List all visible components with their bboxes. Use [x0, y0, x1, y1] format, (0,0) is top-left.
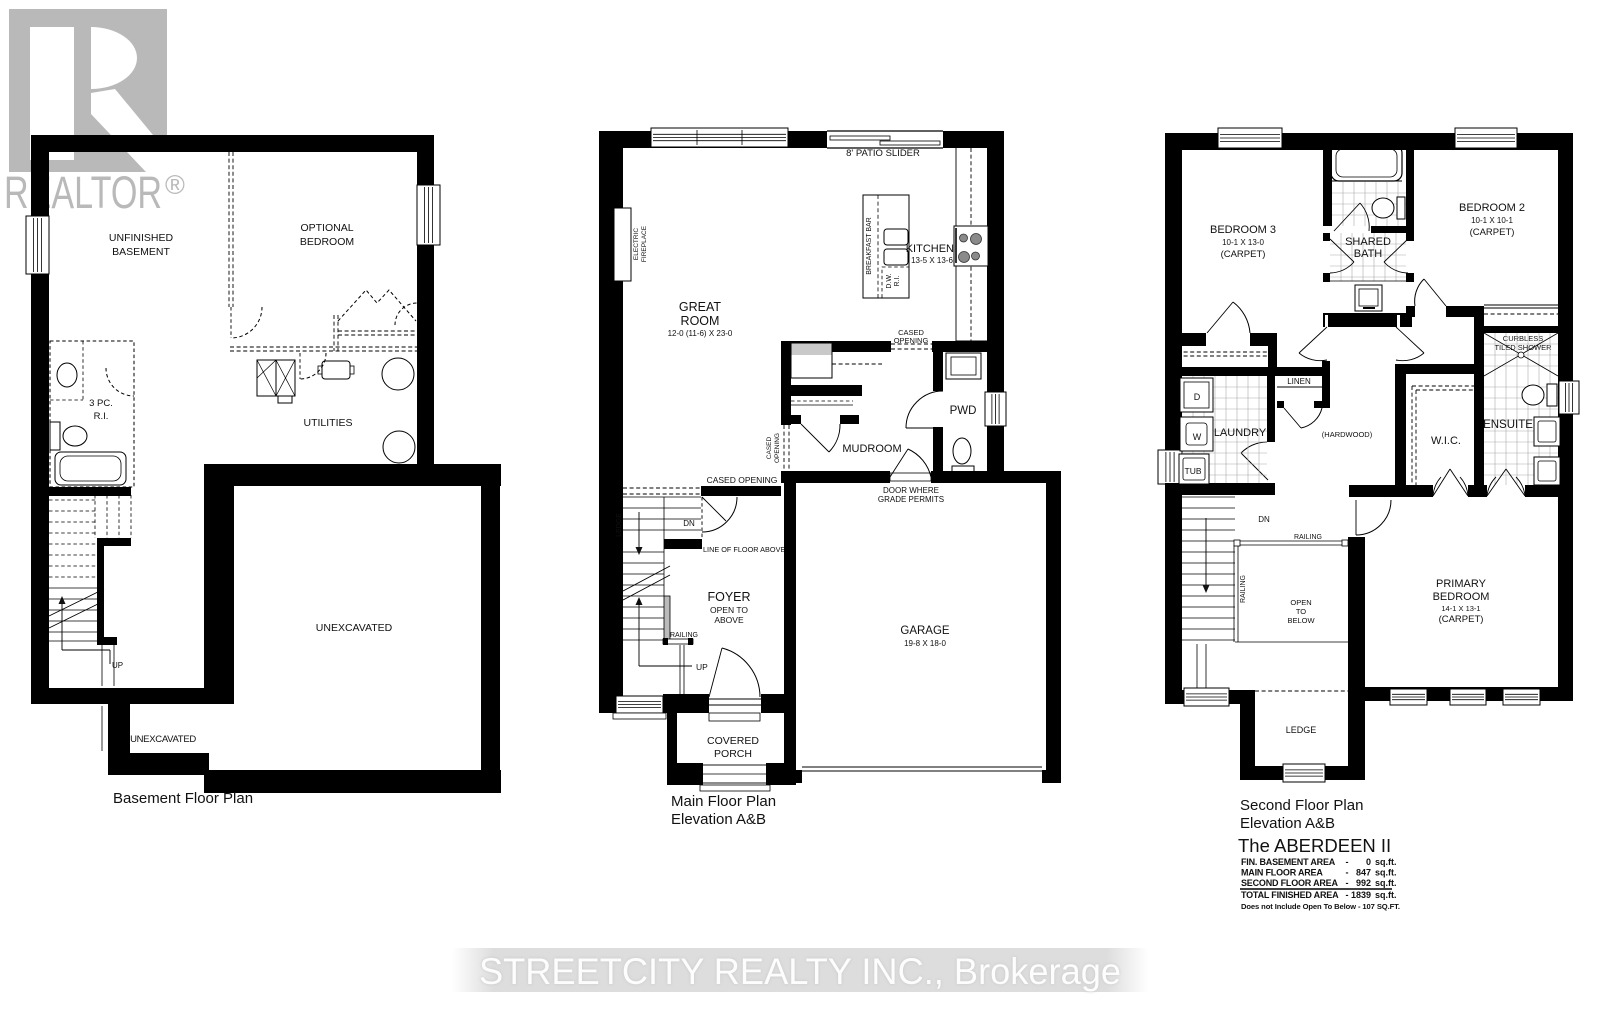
svg-text:R.I.: R.I.	[94, 411, 109, 422]
svg-text:CURBLESS: CURBLESS	[1503, 334, 1543, 343]
svg-text:FIN. BASEMENT AREA: FIN. BASEMENT AREA	[1241, 857, 1336, 867]
svg-text:19-8 X 18-0: 19-8 X 18-0	[904, 639, 946, 648]
svg-text:GRADE PERMITS: GRADE PERMITS	[878, 495, 944, 504]
svg-text:GARAGE: GARAGE	[900, 625, 950, 637]
svg-text:GREAT: GREAT	[679, 300, 721, 314]
svg-text:992: 992	[1356, 878, 1371, 888]
svg-text:TO: TO	[1296, 607, 1306, 616]
svg-text:OPENING: OPENING	[774, 433, 781, 463]
svg-text:UNFINISHED: UNFINISHED	[109, 232, 174, 244]
svg-text:®: ®	[165, 170, 185, 200]
svg-text:sq.ft.: sq.ft.	[1375, 878, 1397, 888]
svg-text:sq.ft.: sq.ft.	[1375, 890, 1397, 900]
svg-text:ELECTRIC: ELECTRIC	[633, 228, 640, 260]
svg-text:BATH: BATH	[1354, 248, 1383, 260]
svg-text:BEDROOM 3: BEDROOM 3	[1210, 224, 1276, 236]
svg-text:STREETCITY REALTY INC., Broker: STREETCITY REALTY INC., Brokerage	[479, 951, 1121, 992]
svg-text:RAILING: RAILING	[1294, 534, 1322, 541]
svg-text:BREAKFAST BAR: BREAKFAST BAR	[866, 217, 873, 274]
svg-text:-: -	[1346, 890, 1349, 900]
svg-text:LEDGE: LEDGE	[616, 513, 623, 537]
svg-text:TUB: TUB	[1185, 466, 1202, 476]
svg-text:UP: UP	[696, 662, 708, 672]
svg-text:-: -	[1346, 868, 1349, 878]
svg-text:LEDGE: LEDGE	[1286, 725, 1317, 735]
svg-text:LINEN: LINEN	[1287, 377, 1311, 386]
svg-text:MUDROOM: MUDROOM	[842, 443, 901, 455]
svg-text:0: 0	[1366, 857, 1371, 867]
svg-text:ABOVE: ABOVE	[714, 615, 744, 625]
svg-text:sq.ft.: sq.ft.	[1375, 868, 1397, 878]
svg-text:Elevation A&B: Elevation A&B	[1240, 815, 1335, 832]
svg-text:1839: 1839	[1351, 890, 1371, 900]
svg-text:DN: DN	[1258, 515, 1270, 524]
svg-text:R.I.: R.I.	[894, 276, 901, 287]
svg-text:Second Floor Plan: Second Floor Plan	[1240, 797, 1363, 814]
svg-text:10-1 X 10-1: 10-1 X 10-1	[1471, 216, 1513, 225]
svg-text:RAILING: RAILING	[670, 632, 698, 639]
svg-text:Does not Include Open To Below: Does not Include Open To Below - 107 SQ.…	[1241, 902, 1400, 911]
svg-text:(CARPET): (CARPET)	[1439, 614, 1484, 625]
svg-text:W.I.C.: W.I.C.	[1431, 435, 1461, 447]
svg-text:UNEXCAVATED: UNEXCAVATED	[316, 622, 393, 634]
svg-text:RAILING: RAILING	[1240, 575, 1247, 603]
svg-text:CASED: CASED	[766, 437, 773, 460]
svg-text:ENSUITE: ENSUITE	[1483, 419, 1533, 431]
svg-text:OPEN TO: OPEN TO	[710, 605, 748, 615]
svg-text:D.W.: D.W.	[886, 273, 893, 288]
svg-text:-: -	[1346, 878, 1349, 888]
svg-text:The ABERDEEN II: The ABERDEEN II	[1238, 835, 1391, 856]
svg-text:(HARDWOOD): (HARDWOOD)	[1322, 430, 1373, 439]
svg-text:BELOW: BELOW	[1287, 616, 1315, 625]
svg-text:SHARED: SHARED	[1345, 236, 1391, 248]
svg-text:COVERED: COVERED	[707, 735, 759, 747]
svg-text:Basement Floor Plan: Basement Floor Plan	[113, 790, 253, 807]
svg-text:PWD: PWD	[950, 405, 977, 417]
svg-text:-: -	[1346, 857, 1349, 867]
svg-text:(CARPET): (CARPET)	[1470, 227, 1515, 238]
svg-text:13-5 X 13-6: 13-5 X 13-6	[911, 256, 953, 265]
svg-text:DN: DN	[683, 519, 695, 528]
svg-text:CASED OPENING: CASED OPENING	[707, 475, 778, 485]
svg-text:TOTAL FINISHED AREA: TOTAL FINISHED AREA	[1241, 890, 1339, 900]
svg-text:FOYER: FOYER	[707, 590, 750, 604]
svg-text:MAIN FLOOR AREA: MAIN FLOOR AREA	[1241, 868, 1323, 878]
svg-text:8' PATIO SLIDER: 8' PATIO SLIDER	[846, 148, 920, 159]
svg-text:UTILITIES: UTILITIES	[303, 417, 352, 429]
svg-text:BEDROOM 2: BEDROOM 2	[1459, 202, 1525, 214]
svg-text:W: W	[1193, 432, 1202, 442]
svg-text:OPTIONAL: OPTIONAL	[300, 222, 353, 234]
svg-text:SECOND FLOOR AREA: SECOND FLOOR AREA	[1241, 878, 1338, 888]
svg-text:sq.ft.: sq.ft.	[1375, 857, 1397, 867]
svg-text:LINE OF FLOOR ABOVE: LINE OF FLOOR ABOVE	[703, 545, 785, 554]
svg-text:KITCHEN: KITCHEN	[906, 243, 954, 255]
svg-text:12-0 (11-6) X 23-0: 12-0 (11-6) X 23-0	[668, 329, 733, 338]
svg-text:FIREPLACE: FIREPLACE	[641, 225, 648, 262]
svg-text:3 PC.: 3 PC.	[89, 398, 113, 409]
svg-text:D: D	[1194, 392, 1201, 402]
svg-text:Elevation A&B: Elevation A&B	[671, 811, 766, 828]
svg-text:OPEN: OPEN	[1290, 598, 1311, 607]
svg-text:BEDROOM: BEDROOM	[1433, 591, 1490, 603]
svg-text:REALTOR: REALTOR	[4, 167, 162, 218]
svg-text:BEDROOM: BEDROOM	[300, 236, 354, 248]
svg-text:PRIMARY: PRIMARY	[1436, 578, 1487, 590]
svg-text:847: 847	[1356, 868, 1371, 878]
svg-text:PORCH: PORCH	[714, 748, 752, 760]
svg-text:10-1 X 13-0: 10-1 X 13-0	[1222, 238, 1264, 247]
svg-text:BASEMENT: BASEMENT	[112, 246, 170, 258]
svg-text:Main Floor Plan: Main Floor Plan	[671, 793, 776, 810]
svg-text:DOOR WHERE: DOOR WHERE	[883, 486, 939, 495]
svg-text:ROOM: ROOM	[681, 314, 720, 328]
svg-text:14-1 X 13-1: 14-1 X 13-1	[1441, 604, 1480, 613]
svg-text:LAUNDRY: LAUNDRY	[1214, 427, 1267, 439]
svg-text:(CARPET): (CARPET)	[1221, 249, 1266, 260]
svg-text:UNEXCAVATED: UNEXCAVATED	[130, 734, 196, 745]
